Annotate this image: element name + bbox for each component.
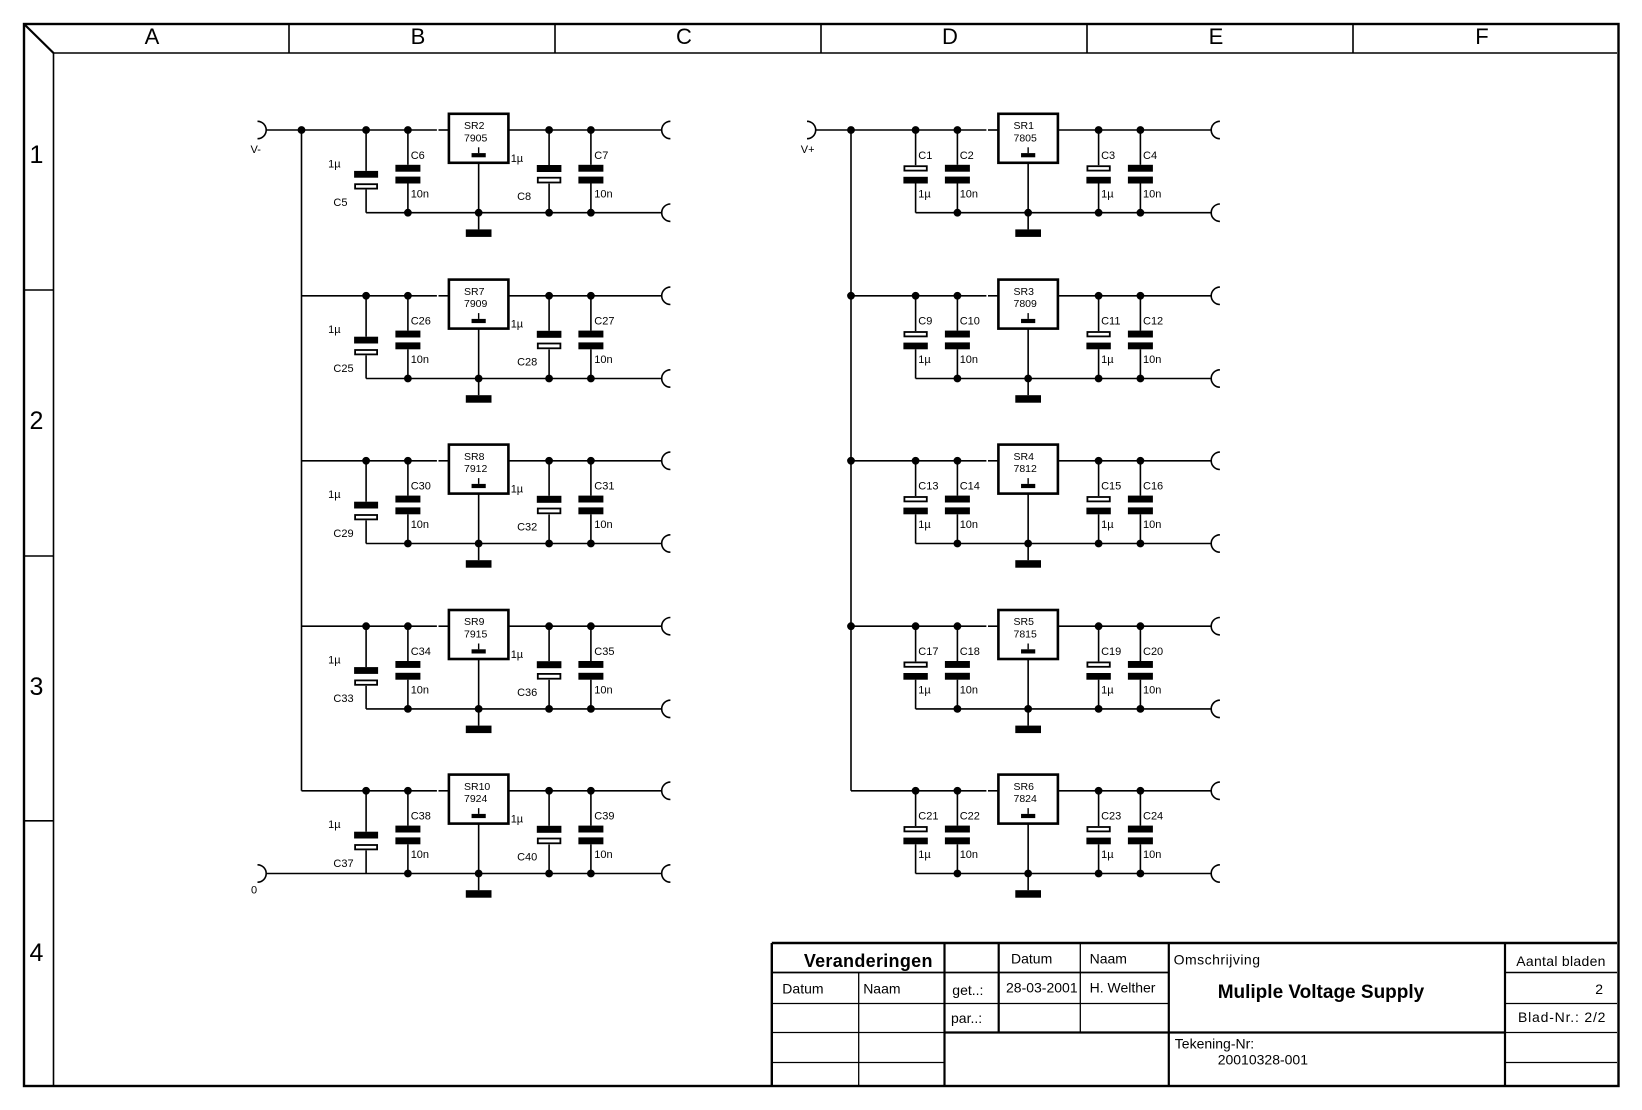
svg-text:10n: 10n: [960, 685, 978, 697]
svg-text:1: 1: [30, 141, 44, 169]
svg-text:C38: C38: [411, 811, 431, 823]
svg-text:C36: C36: [517, 687, 537, 699]
svg-text:10n: 10n: [1143, 519, 1161, 531]
svg-text:10n: 10n: [1143, 188, 1161, 200]
svg-text:10n: 10n: [960, 188, 978, 200]
svg-text:1µ: 1µ: [918, 354, 931, 366]
svg-text:C18: C18: [960, 646, 980, 658]
svg-text:get..:: get..:: [952, 982, 983, 998]
svg-text:C8: C8: [517, 191, 531, 203]
svg-text:C4: C4: [1143, 150, 1157, 162]
svg-text:1µ: 1µ: [328, 489, 341, 501]
svg-text:1µ: 1µ: [511, 484, 524, 496]
svg-text:10n: 10n: [1143, 685, 1161, 697]
svg-text:7824: 7824: [1014, 793, 1038, 805]
svg-text:C15: C15: [1101, 481, 1121, 493]
svg-text:10n: 10n: [411, 519, 429, 531]
svg-text:1µ: 1µ: [328, 819, 341, 831]
svg-text:Muliple Voltage Supply: Muliple Voltage Supply: [1218, 982, 1425, 1003]
svg-text:1µ: 1µ: [511, 319, 524, 331]
svg-text:1µ: 1µ: [328, 324, 341, 336]
svg-text:0: 0: [251, 885, 257, 897]
svg-text:C22: C22: [960, 811, 980, 823]
svg-text:7924: 7924: [464, 793, 488, 805]
svg-text:C12: C12: [1143, 316, 1163, 328]
svg-text:C16: C16: [1143, 481, 1163, 493]
svg-text:C27: C27: [594, 316, 614, 328]
svg-text:C19: C19: [1101, 646, 1121, 658]
svg-text:SR6: SR6: [1014, 781, 1035, 793]
svg-text:E: E: [1209, 24, 1224, 49]
svg-text:7912: 7912: [464, 463, 488, 475]
svg-text:10n: 10n: [1143, 354, 1161, 366]
svg-text:1µ: 1µ: [1101, 354, 1114, 366]
svg-text:C10: C10: [960, 316, 980, 328]
svg-text:1µ: 1µ: [918, 188, 931, 200]
svg-text:3: 3: [30, 673, 44, 701]
svg-text:C35: C35: [594, 646, 614, 658]
svg-text:C9: C9: [918, 316, 932, 328]
svg-text:Tekening-Nr:: Tekening-Nr:: [1175, 1036, 1254, 1052]
svg-text:1µ: 1µ: [1101, 188, 1114, 200]
svg-text:10n: 10n: [960, 849, 978, 861]
svg-text:10n: 10n: [594, 849, 612, 861]
svg-text:4: 4: [30, 939, 44, 967]
svg-text:C39: C39: [594, 811, 614, 823]
svg-text:1µ: 1µ: [918, 849, 931, 861]
svg-text:SR3: SR3: [1014, 286, 1035, 298]
svg-text:C21: C21: [918, 811, 938, 823]
svg-text:7909: 7909: [464, 298, 488, 310]
svg-text:C3: C3: [1101, 150, 1115, 162]
svg-text:SR1: SR1: [1014, 120, 1035, 132]
svg-text:C6: C6: [411, 150, 425, 162]
svg-text:C26: C26: [411, 316, 431, 328]
svg-text:1µ: 1µ: [511, 153, 524, 165]
svg-text:D: D: [942, 24, 958, 49]
svg-text:1µ: 1µ: [511, 649, 524, 661]
svg-text:10n: 10n: [594, 685, 612, 697]
svg-text:Datum: Datum: [782, 981, 823, 997]
svg-text:C25: C25: [333, 363, 353, 375]
svg-text:Naam: Naam: [1090, 951, 1127, 967]
svg-text:10n: 10n: [411, 685, 429, 697]
svg-text:10n: 10n: [1143, 849, 1161, 861]
svg-text:C: C: [676, 24, 692, 49]
svg-text:7809: 7809: [1014, 298, 1038, 310]
svg-text:10n: 10n: [411, 354, 429, 366]
svg-text:SR7: SR7: [464, 286, 485, 298]
svg-text:10n: 10n: [411, 849, 429, 861]
svg-text:SR4: SR4: [1014, 451, 1035, 463]
svg-text:SR5: SR5: [1014, 616, 1035, 628]
svg-text:C17: C17: [918, 646, 938, 658]
svg-text:B: B: [411, 24, 426, 49]
svg-text:C33: C33: [333, 693, 353, 705]
svg-text:2: 2: [30, 407, 44, 435]
svg-text:V+: V+: [801, 144, 815, 156]
svg-text:20010328-001: 20010328-001: [1218, 1052, 1309, 1068]
svg-text:C37: C37: [333, 858, 353, 870]
svg-text:C30: C30: [411, 481, 431, 493]
svg-text:1µ: 1µ: [918, 685, 931, 697]
svg-text:SR2: SR2: [464, 120, 485, 132]
svg-text:10n: 10n: [960, 519, 978, 531]
svg-text:SR10: SR10: [464, 781, 490, 793]
svg-text:10n: 10n: [960, 354, 978, 366]
svg-text:V-: V-: [251, 144, 262, 156]
svg-text:1µ: 1µ: [511, 814, 524, 826]
svg-text:1µ: 1µ: [1101, 849, 1114, 861]
svg-text:C2: C2: [960, 150, 974, 162]
svg-text:C32: C32: [517, 522, 537, 534]
svg-text:10n: 10n: [594, 354, 612, 366]
svg-text:1µ: 1µ: [918, 519, 931, 531]
svg-text:F: F: [1475, 24, 1488, 49]
svg-text:2: 2: [1595, 981, 1603, 997]
svg-text:28-03-2001: 28-03-2001: [1006, 980, 1078, 996]
svg-text:7805: 7805: [1014, 132, 1038, 144]
svg-text:C23: C23: [1101, 811, 1121, 823]
svg-text:10n: 10n: [594, 519, 612, 531]
svg-text:7915: 7915: [464, 629, 488, 641]
svg-text:SR8: SR8: [464, 451, 485, 463]
svg-text:1µ: 1µ: [328, 158, 341, 170]
svg-text:1µ: 1µ: [1101, 519, 1114, 531]
svg-text:7812: 7812: [1014, 463, 1038, 475]
svg-text:C29: C29: [333, 528, 353, 540]
svg-text:10n: 10n: [594, 188, 612, 200]
svg-text:C20: C20: [1143, 646, 1163, 658]
svg-text:Blad-Nr.: 2/2: Blad-Nr.: 2/2: [1518, 1009, 1606, 1025]
svg-text:C34: C34: [411, 646, 431, 658]
svg-text:C31: C31: [594, 481, 614, 493]
svg-text:C5: C5: [333, 197, 347, 209]
svg-text:C40: C40: [517, 852, 537, 864]
svg-text:SR9: SR9: [464, 616, 485, 628]
svg-text:Omschrijving: Omschrijving: [1174, 952, 1261, 968]
svg-text:Datum: Datum: [1011, 951, 1052, 967]
svg-text:Veranderingen: Veranderingen: [804, 951, 933, 971]
svg-text:1µ: 1µ: [328, 655, 341, 667]
svg-text:C24: C24: [1143, 811, 1163, 823]
svg-text:A: A: [145, 24, 160, 49]
svg-text:Naam: Naam: [863, 981, 900, 997]
svg-text:10n: 10n: [411, 188, 429, 200]
svg-text:C11: C11: [1101, 316, 1120, 328]
svg-text:C7: C7: [594, 150, 608, 162]
svg-text:C1: C1: [918, 150, 932, 162]
svg-text:7905: 7905: [464, 132, 488, 144]
svg-text:C28: C28: [517, 357, 537, 369]
svg-text:Aantal bladen: Aantal bladen: [1516, 953, 1606, 969]
svg-text:C13: C13: [918, 481, 938, 493]
svg-text:H. Welther: H. Welther: [1090, 980, 1156, 996]
svg-text:par..:: par..:: [951, 1010, 982, 1026]
svg-text:7815: 7815: [1014, 629, 1038, 641]
svg-text:C14: C14: [960, 481, 980, 493]
svg-text:1µ: 1µ: [1101, 685, 1114, 697]
